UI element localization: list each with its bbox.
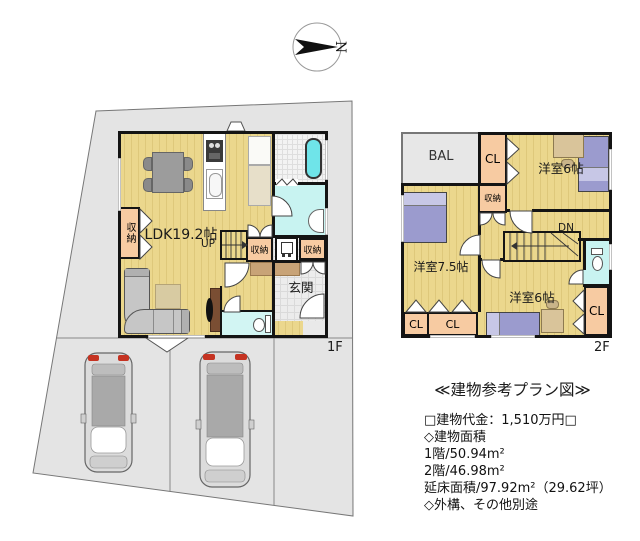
car-1 (81, 353, 136, 472)
bedroom-left-label: 洋室7.5帖 (405, 261, 477, 274)
info-lines: □建物代金：1,510万円□ ◇建物面積 1階/50.94m² 2階/46.98… (400, 409, 625, 511)
compass: N (293, 23, 348, 71)
floor2-plan: CL 収納 CL CL CL (401, 132, 612, 338)
up-arrow (242, 241, 248, 249)
up-label: UP (196, 239, 220, 250)
floor2-tag: 2F (594, 341, 610, 355)
info-line-1f-area: 1階/50.94m² (424, 443, 625, 460)
car-2 (196, 352, 254, 487)
floor1-tag: 1F (327, 341, 343, 355)
down-arrow (511, 242, 517, 250)
info-line-note: ◇外構、その他別途 (424, 494, 625, 511)
door-arc-washroom (272, 196, 292, 216)
door-arc-bedroom-bottom (482, 260, 500, 278)
door-arc-bedroom-left (460, 235, 480, 255)
info-title: ≪建物参考プラン図≫ (400, 382, 625, 398)
bedroom-top-label: 洋室6帖 (529, 162, 593, 175)
info-block: ≪建物参考プラン図≫ □建物代金：1,510万円□ ◇建物面積 1階/50.94… (400, 382, 625, 511)
info-line-price: □建物代金：1,510万円□ (424, 409, 625, 426)
info-line-total-area: 延床面積/97.92m²（29.62坪） (424, 477, 625, 494)
door-arc-bedroom-top (510, 211, 532, 233)
door-arc-front (300, 294, 324, 318)
compass-north-label: N (332, 41, 348, 53)
compass-needle (295, 39, 338, 55)
door-arc-toilet (224, 296, 240, 312)
entrance-label: 玄関 (279, 281, 323, 294)
floor1-plan: 収納 収納 収納 (118, 131, 328, 338)
door-arc-toilet-2f (569, 270, 583, 284)
door-arc-ldk (225, 263, 249, 287)
plan-sheet: N (0, 0, 640, 541)
info-line-2f-area: 2階/46.98m² (424, 460, 625, 477)
info-line-area-head: ◇建物面積 (424, 426, 625, 443)
balcony-label: BAL (411, 150, 471, 164)
bedroom-bottom-label: 洋室6帖 (500, 291, 564, 304)
dn-label: DN (551, 223, 581, 234)
